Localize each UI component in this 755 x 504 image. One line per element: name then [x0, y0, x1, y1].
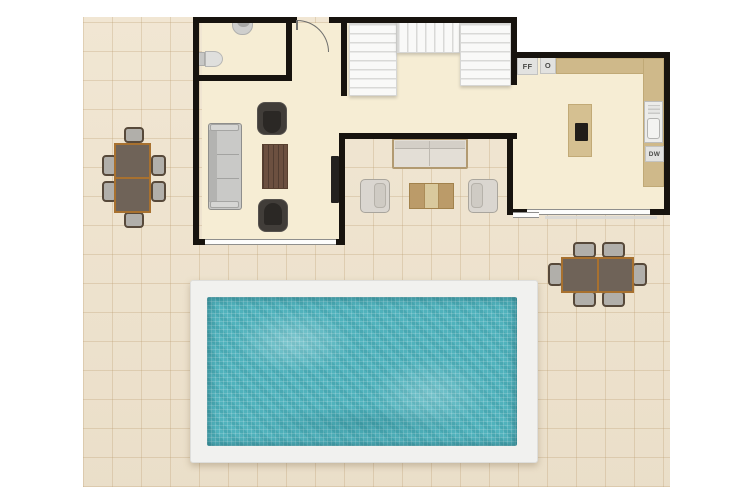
dining-chair: [151, 181, 166, 202]
sofa-seam: [217, 154, 239, 155]
wall-kitchen-left: [507, 133, 513, 215]
armchair-top: [257, 102, 287, 135]
dining-chair: [632, 263, 647, 286]
stair-flight-left: [349, 23, 397, 96]
dining-chair: [573, 242, 596, 258]
oven: O: [540, 57, 556, 74]
toilet: [205, 51, 223, 67]
dining-chair: [151, 155, 166, 176]
wall-left: [193, 17, 199, 245]
wall-living-right: [339, 133, 345, 245]
sofa-seam: [217, 178, 239, 179]
sofa-armrest: [210, 201, 239, 208]
table-center-panel: [424, 184, 439, 208]
dining-chair: [602, 291, 625, 307]
floor-plan: FF O DW: [0, 0, 755, 504]
swimming-pool: [207, 297, 517, 446]
cooktop: [575, 123, 588, 141]
entry-door-leaf: [296, 20, 298, 30]
dishwasher-label: DW: [649, 151, 660, 158]
wall-bathroom-bottom: [193, 75, 292, 81]
window-kitchen: [527, 209, 650, 215]
kitchen-island: [568, 104, 592, 157]
outdoor-armchair-right: [468, 179, 498, 213]
stair-flight-top: [397, 20, 460, 53]
stair-flight-right: [460, 23, 511, 86]
oven-label: O: [545, 61, 551, 70]
wall-stair-left: [341, 17, 347, 96]
wall-top-left: [193, 17, 297, 23]
sofa-back-cushion: [395, 141, 465, 149]
toilet-tank: [198, 52, 205, 66]
sink-basin: [647, 118, 660, 139]
dining-chair: [124, 127, 144, 143]
sink-faucet: [648, 105, 660, 114]
sofa-back: [209, 130, 217, 202]
chair-cushion: [374, 183, 386, 208]
kitchen-sink: [644, 101, 663, 143]
armchair-seat: [264, 203, 282, 225]
window-lounge: [513, 212, 539, 218]
wall-kitchen-right: [664, 52, 670, 215]
sofa-seam: [429, 141, 430, 166]
fridge-freezer-label: FF: [523, 62, 533, 71]
armchair-bottom: [258, 199, 288, 232]
dining-chair: [602, 242, 625, 258]
kitchen-door-track: [545, 216, 657, 219]
table-divider: [597, 259, 599, 291]
wall-stair-right: [511, 17, 517, 85]
dining-chair: [124, 212, 144, 228]
outdoor-armchair-left: [360, 179, 390, 213]
dining-chair: [573, 291, 596, 307]
window-living-room: [205, 239, 336, 245]
coffee-table: [262, 144, 288, 189]
sofa-armrest: [210, 124, 239, 131]
outdoor-sofa: [392, 138, 468, 169]
wall-bathroom-right: [286, 17, 292, 81]
sofa: [208, 123, 242, 210]
dining-table-right: [561, 257, 634, 293]
patio-cutout: [513, 13, 673, 52]
wall-kitchen-top: [511, 52, 670, 58]
wall-top-mid: [329, 17, 517, 23]
fridge-freezer: FF: [517, 57, 538, 75]
dishwasher: DW: [645, 146, 664, 162]
wall-lounge-top: [341, 133, 517, 139]
table-divider: [116, 177, 149, 179]
chair-cushion: [471, 183, 483, 208]
outdoor-coffee-table: [409, 183, 454, 209]
armchair-seat: [263, 111, 281, 133]
tv: [331, 156, 339, 203]
dining-table-left: [114, 143, 151, 213]
